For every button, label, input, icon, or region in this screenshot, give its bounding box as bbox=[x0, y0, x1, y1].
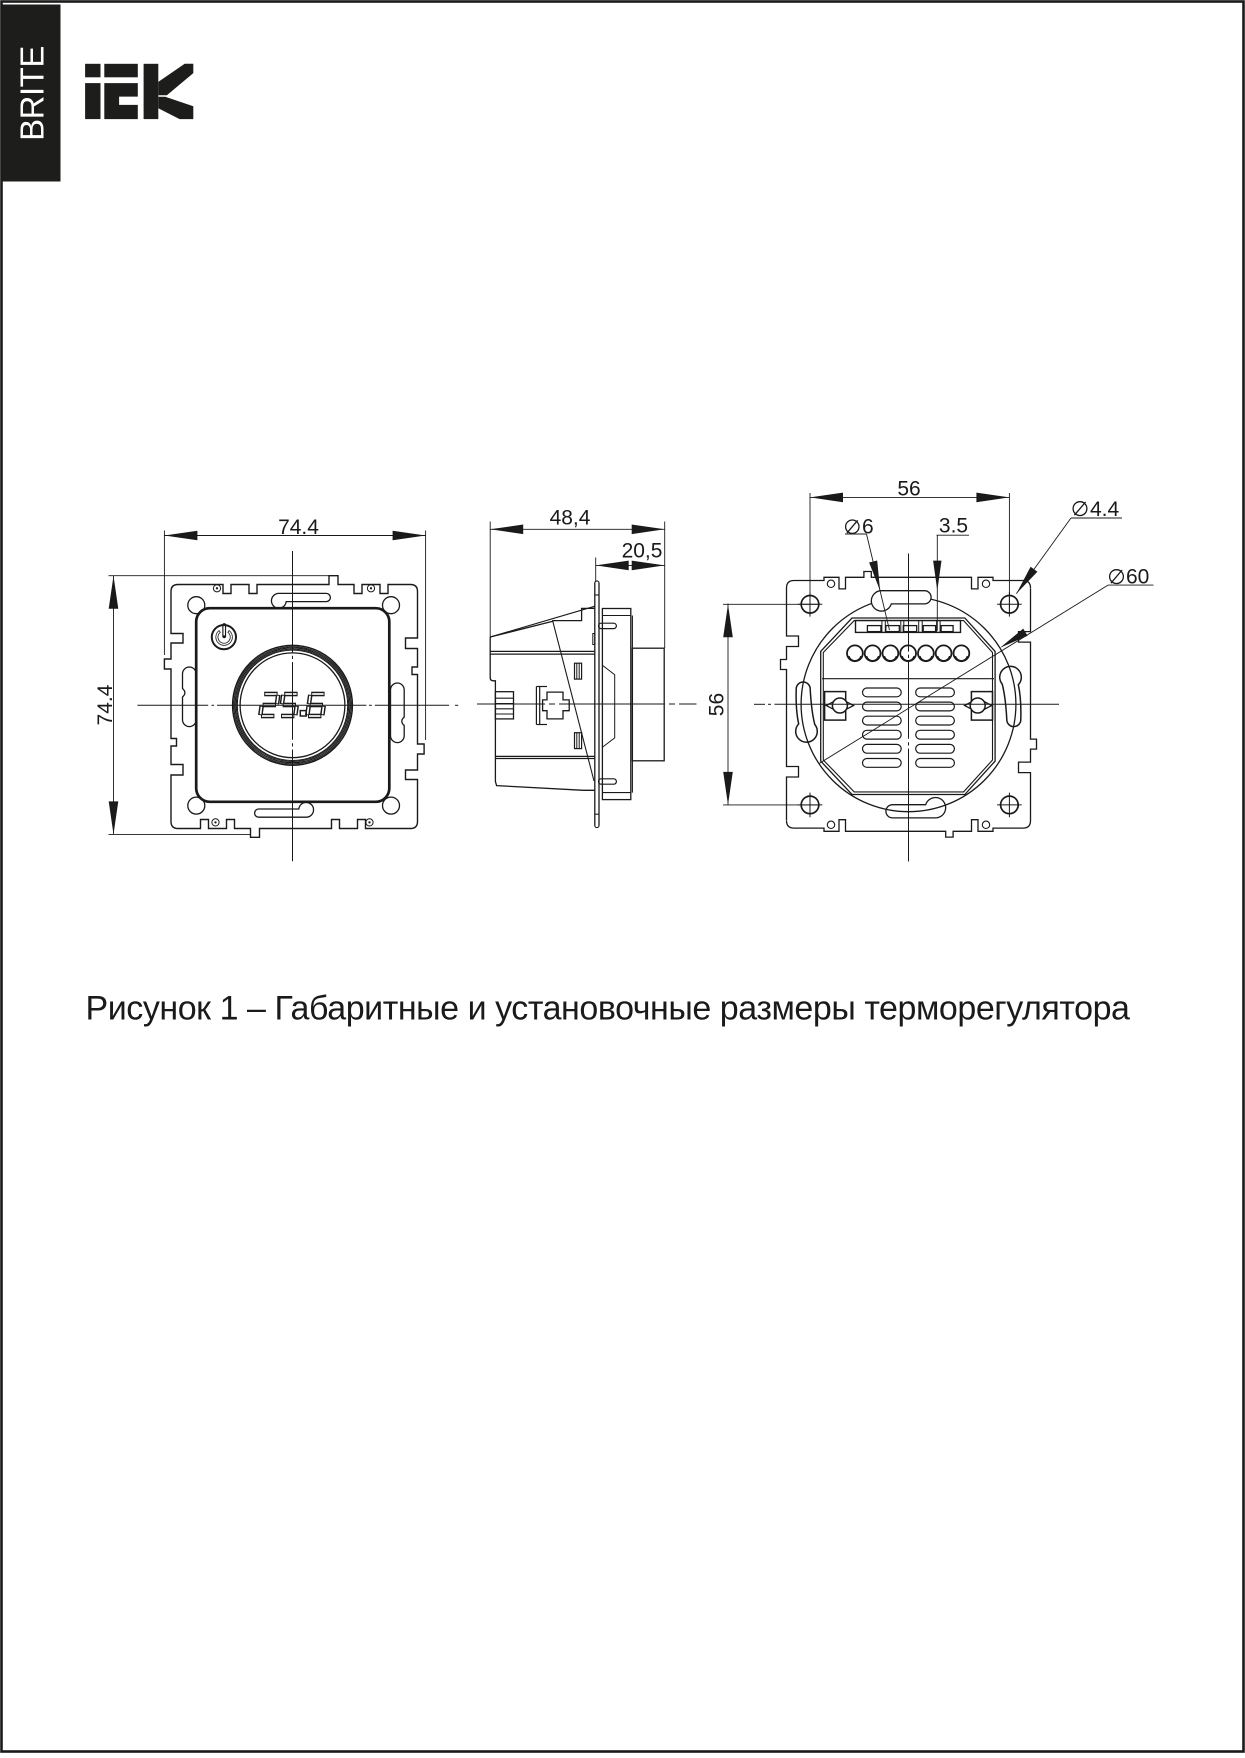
svg-text:4.4: 4.4 bbox=[1090, 498, 1120, 521]
svg-text:20,5: 20,5 bbox=[622, 540, 663, 563]
svg-text:Рисунок 1 – Габаритные и устан: Рисунок 1 – Габаритные и установочные ра… bbox=[86, 990, 1131, 1028]
svg-text:74.4: 74.4 bbox=[94, 684, 117, 725]
svg-text:BRITE: BRITE bbox=[14, 46, 51, 141]
svg-text:56: 56 bbox=[897, 478, 920, 501]
svg-text:48,4: 48,4 bbox=[550, 507, 591, 530]
svg-text:56: 56 bbox=[706, 693, 729, 716]
svg-text:6: 6 bbox=[862, 516, 874, 539]
svg-text:74.4: 74.4 bbox=[278, 516, 319, 539]
svg-text:60: 60 bbox=[1126, 566, 1149, 589]
svg-text:3.5: 3.5 bbox=[939, 515, 968, 538]
